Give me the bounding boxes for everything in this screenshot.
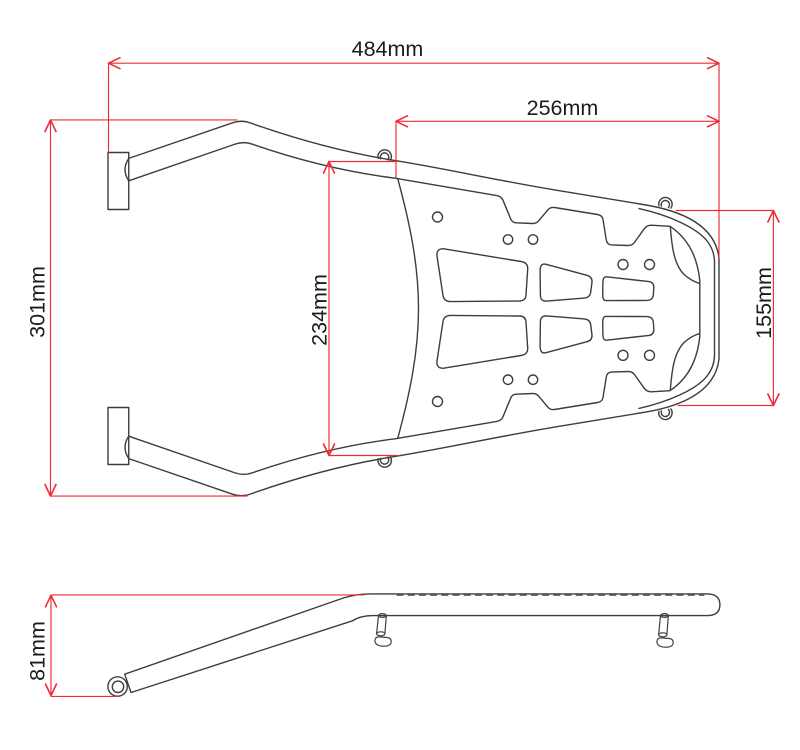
svg-text:155mm: 155mm: [752, 267, 776, 339]
svg-text:256mm: 256mm: [527, 96, 599, 120]
svg-text:301mm: 301mm: [26, 266, 50, 338]
svg-text:484mm: 484mm: [352, 37, 424, 61]
svg-text:81mm: 81mm: [26, 621, 50, 681]
svg-text:234mm: 234mm: [307, 274, 331, 346]
